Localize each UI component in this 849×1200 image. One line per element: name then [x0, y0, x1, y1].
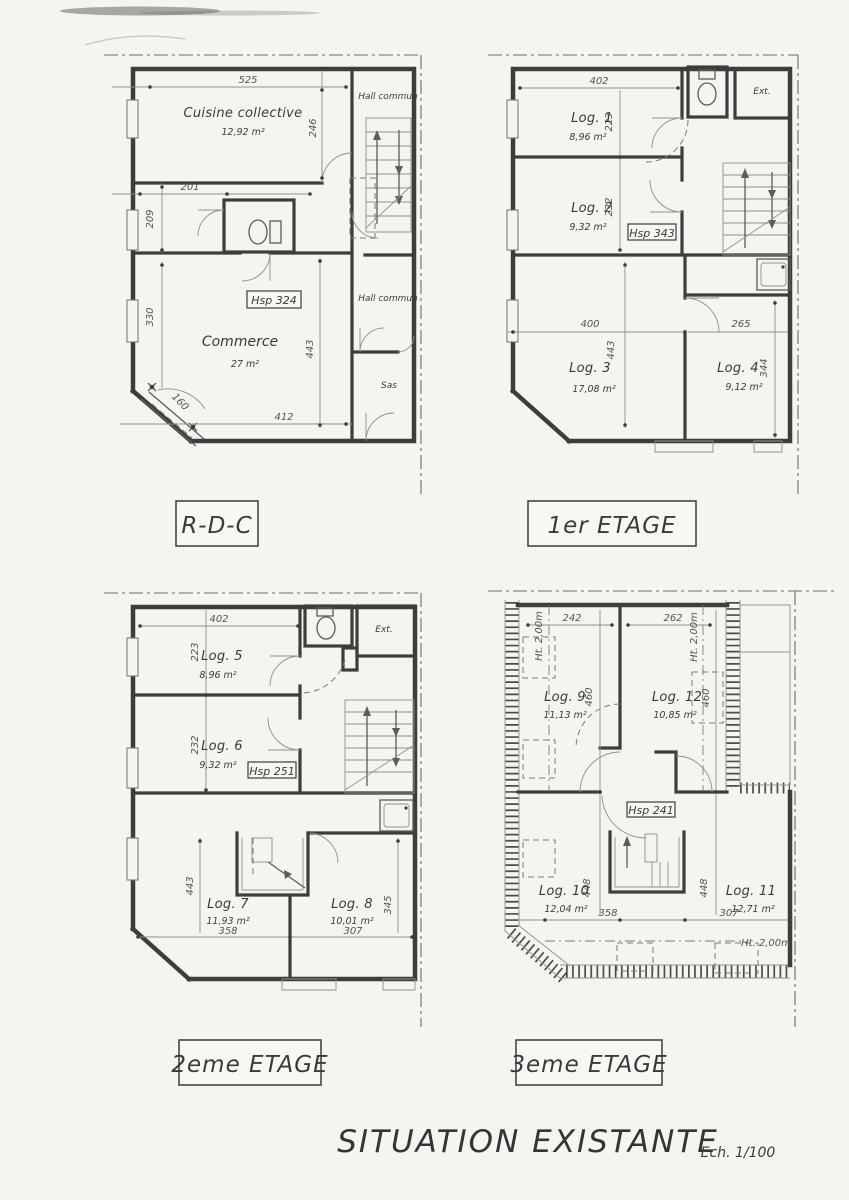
dim-443: 443 — [305, 339, 316, 358]
pier — [343, 648, 357, 670]
floor-label-rdc: R-D-C — [176, 501, 258, 546]
plan-drawing: 525 246 Cuisine collective 12,92 m² Hall… — [0, 0, 849, 1200]
shower-icon — [380, 800, 413, 831]
plan-rdc: 525 246 Cuisine collective 12,92 m² Hall… — [104, 55, 421, 497]
hsp-value: Hsp 241 — [628, 804, 673, 817]
dim-223: 223 — [190, 642, 201, 661]
toilet-icon — [698, 70, 716, 105]
corner-entrance — [141, 383, 205, 446]
room-label-commerce: Commerce — [202, 334, 278, 350]
dim-358: 358 — [218, 926, 237, 937]
dim-448-right: 448 — [699, 878, 710, 897]
window — [127, 638, 138, 676]
room-area-log9: 11,13 m² — [543, 710, 586, 721]
dim-460-right: 460 — [701, 688, 712, 707]
stairs-icon — [350, 118, 411, 238]
property-line — [488, 55, 798, 497]
dim-345: 345 — [383, 895, 394, 914]
room-label-log8: Log. 8 — [331, 897, 373, 912]
dim-412: 412 — [274, 412, 293, 423]
floor-label-etage2: 2eme ETAGE — [171, 1040, 328, 1085]
room-area-log6: 9,32 m² — [199, 760, 236, 771]
dim-402: 402 — [209, 614, 228, 625]
room-label-log4: Log. 4 — [717, 361, 759, 376]
dim-232: 232 — [604, 197, 615, 216]
window — [127, 100, 138, 138]
window — [507, 100, 518, 138]
dim-525: 525 — [238, 75, 257, 86]
wc-room — [688, 67, 727, 117]
window — [127, 300, 138, 342]
room-label-cuisine: Cuisine collective — [184, 106, 303, 121]
room-label-ext: Ext. — [753, 87, 770, 97]
dim-265: 265 — [731, 319, 750, 330]
dim-262: 262 — [663, 613, 682, 624]
room-label-log6: Log. 6 — [201, 739, 243, 754]
room-area-log4: 9,12 m² — [725, 382, 762, 393]
stairs-icon — [723, 163, 790, 255]
room-area-log2: 9,32 m² — [569, 222, 606, 233]
svg-text:R-D-C: R-D-C — [181, 513, 252, 539]
dim-232: 232 — [190, 735, 201, 754]
room-label-log3: Log. 3 — [569, 361, 611, 376]
toilet-icon — [249, 220, 281, 244]
title-scale: Ech. 1/100 — [701, 1145, 776, 1161]
window — [507, 300, 518, 342]
scan-artifact — [60, 7, 320, 46]
dim-400: 400 — [580, 319, 599, 330]
floor-label-etage1: 1er ETAGE — [528, 501, 696, 546]
svg-text:2eme ETAGE: 2eme ETAGE — [171, 1052, 328, 1078]
room-label-hall-top: Hall commun — [358, 92, 418, 102]
interior-walls — [133, 69, 414, 441]
room-area-log5: 8,96 m² — [199, 670, 236, 681]
ht-left: Ht. 2,00m — [534, 611, 545, 661]
dim-443: 443 — [606, 340, 617, 359]
dim-160: 160 — [169, 392, 190, 413]
dim-242: 242 — [562, 613, 581, 624]
door-arcs — [576, 704, 712, 838]
dim-330: 330 — [145, 307, 156, 326]
hsp-value: Hsp 324 — [251, 294, 296, 307]
dim-443: 443 — [185, 876, 196, 895]
room-label-log1: Log. 1 — [571, 111, 613, 126]
room-label-log7: Log. 7 — [207, 897, 249, 912]
room-area-cuisine: 12,92 m² — [221, 127, 264, 138]
window — [507, 210, 518, 250]
room-area-log12: 10,85 m² — [653, 710, 696, 721]
ht-right: Ht. 2,00m — [689, 612, 700, 662]
room-label-log11: Log. 11 — [726, 884, 776, 899]
dim-209: 209 — [145, 209, 156, 228]
toilet-icon — [317, 608, 335, 639]
shower-icon — [757, 259, 790, 290]
dim-201: 201 — [180, 182, 199, 193]
svg-text:1er ETAGE: 1er ETAGE — [547, 513, 676, 539]
hsp-value: Hsp 343 — [629, 227, 674, 240]
room-label-log9: Log. 9 — [544, 690, 586, 705]
room-label-log10: Log. 10 — [539, 884, 589, 899]
ht-bottom: Ht. 2,00m — [741, 938, 791, 949]
stairs-icon — [610, 832, 684, 892]
plan-etage1: 402 223 Log. 1 8,96 m² Ext. Log. 2 9,32 … — [488, 55, 798, 497]
room-label-log5: Log. 5 — [201, 649, 243, 664]
room-label-log12: Log. 12 — [652, 690, 702, 705]
floor-label-etage3: 3eme ETAGE — [510, 1040, 667, 1085]
plan-etage2: 402 223 Log. 5 8,96 m² Ext. Log. 6 9,32 … — [104, 593, 421, 1027]
window — [127, 210, 138, 250]
hatched-walls — [505, 600, 790, 978]
title-text: SITUATION EXISTANTE — [337, 1124, 719, 1160]
room-area-log3: 17,08 m² — [572, 384, 615, 395]
sheet-title: SITUATION EXISTANTE Ech. 1/100 — [337, 1124, 775, 1161]
room-area-log10: 12,04 m² — [544, 904, 587, 915]
room-area-log1: 8,96 m² — [569, 132, 606, 143]
dim-358: 358 — [598, 908, 617, 919]
window — [127, 838, 138, 880]
window — [127, 748, 138, 788]
dim-307: 307 — [719, 908, 739, 919]
interior-stair-log7 — [237, 833, 308, 895]
property-line — [104, 55, 421, 497]
property-line — [104, 593, 421, 1027]
hsp-value: Hsp 251 — [249, 765, 294, 778]
dim-344: 344 — [759, 358, 770, 377]
room-area-commerce: 27 m² — [231, 359, 259, 370]
stairs-icon — [345, 700, 414, 793]
wc-room — [305, 606, 352, 646]
plan-etage3: 242 262 Ht. 2,00m Ht. 2,00m 460 460 Log.… — [488, 591, 835, 1027]
room-label-sas: Sas — [381, 381, 397, 391]
dimension-lines — [518, 610, 793, 922]
room-label-ext: Ext. — [375, 625, 392, 635]
scanned-plan-sheet: 525 246 Cuisine collective 12,92 m² Hall… — [0, 0, 849, 1200]
dim-307: 307 — [343, 926, 363, 937]
dim-246: 246 — [308, 118, 319, 137]
room-label-hall-mid: Hall commun — [358, 294, 418, 304]
svg-text:3eme ETAGE: 3eme ETAGE — [510, 1052, 667, 1078]
dim-402: 402 — [589, 76, 608, 87]
roof-terrace — [740, 605, 790, 785]
